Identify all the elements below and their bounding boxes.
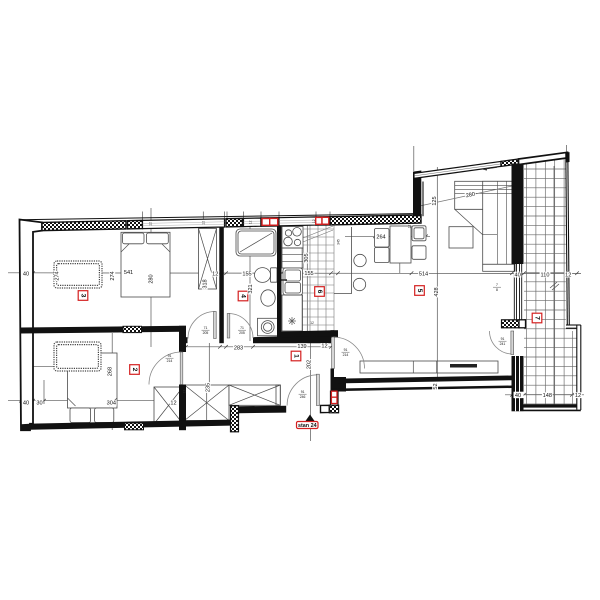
- svg-text:205: 205: [239, 331, 245, 335]
- svg-text:12: 12: [310, 321, 314, 325]
- svg-text:91: 91: [168, 354, 172, 358]
- svg-text:12: 12: [249, 220, 253, 224]
- svg-text:148: 148: [543, 393, 552, 399]
- svg-text:283: 283: [234, 345, 243, 351]
- svg-text:stan 24: stan 24: [298, 423, 317, 429]
- svg-text:40: 40: [514, 272, 520, 278]
- svg-text:345: 345: [337, 239, 341, 245]
- svg-text:428: 428: [434, 287, 440, 296]
- svg-text:1: 1: [293, 354, 300, 358]
- svg-text:6: 6: [316, 290, 323, 294]
- svg-text:3: 3: [80, 294, 87, 298]
- svg-text:12: 12: [408, 225, 412, 229]
- svg-text:12: 12: [170, 401, 176, 407]
- svg-text:274: 274: [55, 271, 61, 280]
- svg-text:7: 7: [496, 283, 498, 287]
- svg-text:40: 40: [23, 401, 29, 407]
- svg-text:12: 12: [183, 390, 187, 394]
- svg-text:264: 264: [376, 235, 385, 241]
- svg-text:139: 139: [297, 344, 306, 350]
- svg-text:274: 274: [110, 271, 116, 280]
- svg-text:214: 214: [167, 359, 173, 363]
- svg-text:7: 7: [534, 316, 541, 320]
- svg-text:155: 155: [304, 271, 313, 277]
- svg-text:214: 214: [343, 353, 349, 357]
- svg-text:280: 280: [148, 274, 154, 283]
- svg-text:91: 91: [501, 337, 505, 341]
- svg-text:91: 91: [301, 390, 305, 394]
- svg-text:268: 268: [108, 367, 114, 376]
- svg-text:52: 52: [433, 383, 439, 389]
- svg-text:12: 12: [212, 271, 218, 277]
- svg-text:155: 155: [242, 272, 251, 278]
- svg-text:30: 30: [36, 401, 42, 407]
- svg-text:318: 318: [203, 279, 209, 288]
- svg-text:5: 5: [416, 289, 423, 293]
- svg-text:40: 40: [515, 393, 521, 399]
- svg-text:71: 71: [204, 326, 208, 330]
- svg-text:235: 235: [206, 383, 212, 392]
- svg-text:246: 246: [300, 395, 306, 399]
- svg-text:110: 110: [541, 272, 550, 278]
- svg-text:12: 12: [149, 222, 153, 226]
- svg-text:8: 8: [496, 288, 498, 292]
- svg-text:305: 305: [304, 253, 310, 262]
- svg-text:71: 71: [240, 326, 244, 330]
- svg-text:12: 12: [575, 393, 581, 399]
- svg-text:12: 12: [321, 344, 327, 350]
- svg-text:304: 304: [107, 401, 116, 407]
- svg-text:12: 12: [565, 272, 571, 278]
- svg-text:91: 91: [344, 348, 348, 352]
- svg-text:2: 2: [131, 368, 138, 372]
- svg-text:514: 514: [419, 271, 428, 277]
- svg-text:12: 12: [312, 219, 316, 223]
- svg-text:241: 241: [500, 342, 506, 346]
- svg-text:12: 12: [202, 221, 206, 225]
- svg-text:202: 202: [307, 360, 313, 369]
- svg-text:541: 541: [124, 270, 133, 276]
- svg-text:40: 40: [23, 271, 29, 277]
- svg-text:321: 321: [248, 284, 254, 293]
- svg-text:4: 4: [240, 294, 247, 298]
- svg-text:125: 125: [432, 196, 438, 205]
- svg-text:205: 205: [203, 331, 209, 335]
